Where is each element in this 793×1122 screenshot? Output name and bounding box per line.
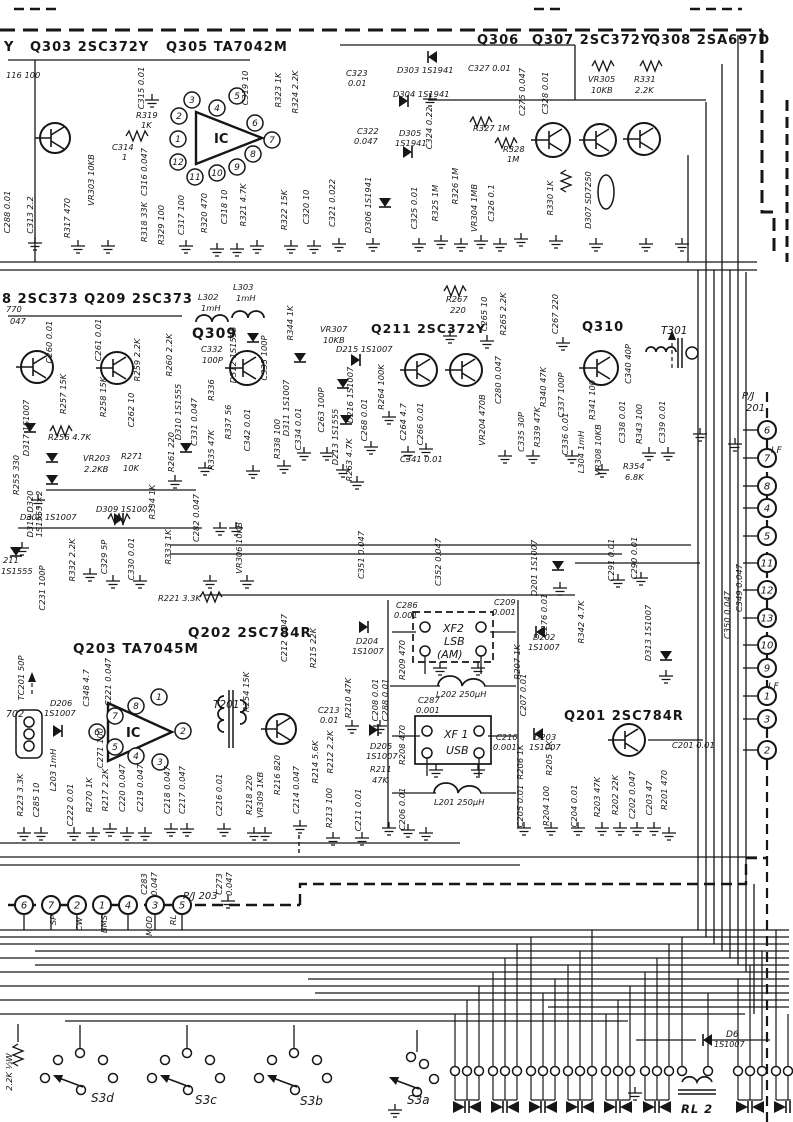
component-label: D310 1S1555 — [173, 384, 183, 441]
component-label: 0.001 — [394, 610, 418, 620]
ground-symbol — [364, 441, 378, 454]
component-label: 0.047 — [149, 871, 159, 895]
pj201-pin-number: 2 — [764, 746, 770, 757]
section-title: Q303 2SC372Y — [30, 40, 149, 55]
component-label: R344 1K — [285, 305, 295, 341]
section-title: P/J 203 — [183, 891, 218, 902]
filter-pin-xf2 — [420, 622, 430, 632]
component-label: R327 1M — [473, 123, 510, 133]
component-label: C334 0.01 — [293, 408, 303, 451]
component-label: C316 0.047 — [139, 147, 149, 196]
component-label: CW — [74, 916, 84, 931]
component-label: C211 0.01 — [353, 789, 363, 832]
ic-q305-pin-number: 9 — [234, 163, 240, 173]
component-label: R326 1M — [450, 168, 460, 205]
lamp-d307 — [598, 175, 614, 209]
ground-symbol — [345, 720, 359, 733]
steering-diode — [774, 1101, 786, 1113]
terminal-circle — [463, 1067, 472, 1076]
component-label: R264 100K — [376, 364, 386, 410]
pj201-pin-number: 4 — [764, 504, 770, 515]
ic-q305-pin-number: 4 — [214, 104, 220, 114]
component-label: D305 — [399, 128, 421, 138]
pj203-pin-number: 1 — [99, 901, 105, 912]
ground-symbol — [210, 243, 224, 256]
component-label: VR307 — [320, 324, 348, 334]
transistor-leads-q303 — [35, 127, 64, 149]
ic-q305-pin-number: 2 — [176, 112, 182, 122]
component-label: R223 3.3K — [15, 773, 25, 816]
component-label: D216 1S1007 — [345, 366, 355, 423]
component-label: VR308 10KB — [593, 424, 603, 476]
ground-symbol — [168, 475, 182, 488]
component-label: R333 1K — [163, 529, 173, 565]
ic-q305-pin-number: 8 — [250, 150, 256, 160]
component-label: C207 0.01 — [518, 674, 528, 717]
component-label: C221 0.047 — [103, 657, 113, 706]
ground-symbol — [480, 335, 494, 348]
terminal-circle — [451, 1067, 460, 1076]
diode-symbol — [552, 561, 564, 570]
component-label: D309 1S1007 — [96, 504, 153, 514]
component-label: C348 4.7 — [81, 669, 91, 707]
component-label: R340 47K — [538, 366, 548, 407]
component-label: 211 — [3, 555, 19, 565]
component-label: C349 0.047 — [734, 563, 744, 612]
ground-symbol — [213, 522, 227, 535]
component-label: R259 2.2K — [132, 338, 142, 381]
ic-q203-pin-number: 2 — [180, 727, 186, 737]
ground-symbol — [164, 823, 178, 836]
steering-diode — [507, 1101, 519, 1113]
ground-symbol — [675, 238, 689, 251]
component-label: C260 0.01 — [44, 321, 54, 364]
component-label: R218 220 — [244, 775, 254, 815]
component-label: C351 0.047 — [356, 530, 366, 579]
component-label: D307 SD7250 — [583, 171, 593, 229]
terminal-circle — [602, 1067, 611, 1076]
component-label: R343 100 — [634, 404, 644, 444]
component-label: VR306 10KB — [234, 522, 244, 574]
ground-symbol — [474, 235, 488, 248]
component-label: R221 3.3K — [158, 593, 201, 603]
component-label: C321 0.022 — [327, 179, 337, 227]
pj201-pin-number: 1 — [764, 692, 770, 703]
switch-wiper-s3c — [166, 1078, 190, 1087]
steering-diode — [453, 1101, 465, 1113]
ground-symbol — [145, 94, 159, 107]
section-title: Q310 — [582, 320, 624, 335]
component-label: 0.001 — [493, 742, 517, 752]
pj201-pin-number: 6 — [764, 426, 770, 437]
coil-l202 — [438, 676, 485, 686]
ic-q203-label: IC — [126, 726, 140, 741]
component-label: D313 1S1007 — [643, 604, 653, 661]
section-title: Q309 — [192, 326, 237, 342]
pj201-pin-number: 9 — [764, 664, 770, 675]
component-label: R332 2.2K — [67, 538, 77, 581]
component-label: C218 0.047 — [162, 765, 172, 814]
diode-symbol — [46, 453, 58, 462]
component-label: C318 10 — [219, 190, 229, 225]
component-label: C202 0.047 — [627, 770, 637, 819]
component-label: C217 0.047 — [177, 765, 187, 814]
terminal-circle — [539, 1067, 548, 1076]
component-label: C342 0.01 — [242, 409, 252, 452]
component-label: 0.001 — [416, 705, 440, 715]
switch-contact-s3a — [430, 1075, 439, 1084]
section-title: S3b — [300, 1094, 323, 1108]
transistor-leads-q211a — [400, 359, 430, 381]
component-label: R317 470 — [62, 198, 72, 238]
component-label: R267 — [446, 294, 468, 304]
component-label: C204 0.01 — [569, 785, 579, 828]
pj201-pin-number: 7 — [764, 454, 771, 465]
component-label: 100P — [202, 355, 223, 365]
switch-contact-s3d — [54, 1056, 63, 1065]
pj203-pin-number: 6 — [21, 901, 27, 912]
steering-diode — [545, 1101, 557, 1113]
ground-symbol — [639, 238, 653, 251]
diode-symbol — [53, 725, 62, 737]
filter-pin-xf2 — [476, 622, 486, 632]
ic-q203-pin-number: 1 — [156, 693, 162, 703]
diode-symbol — [46, 475, 58, 484]
component-label: R334 1K — [147, 484, 157, 520]
component-label: 116 100 — [6, 70, 40, 80]
ground-symbol — [240, 575, 254, 588]
component-label: SP — [48, 915, 58, 925]
transistor-leads-q308 — [623, 128, 653, 150]
switch-contact-s3c — [183, 1049, 192, 1058]
component-label: C263 100P — [316, 387, 326, 432]
terminal-circle — [475, 1067, 484, 1076]
component-label: C337 100P — [556, 372, 566, 417]
steering-diode — [604, 1101, 616, 1113]
component-label: 1mH — [201, 303, 221, 313]
transistor-leads-q310 — [579, 357, 610, 379]
filter-pin-xf2 — [476, 646, 486, 656]
filter-pin-xf1 — [474, 726, 484, 736]
coil-turn — [686, 347, 698, 359]
ic-q305-pin-number: 10 — [211, 169, 223, 179]
ground-symbol — [388, 1104, 402, 1117]
component-label: 2.2K ½W — [4, 1052, 14, 1090]
component-label: D203 — [534, 732, 556, 742]
terminal-circle — [501, 1067, 510, 1076]
component-label: R209 470 — [397, 640, 407, 680]
component-label: C329 5P — [99, 540, 109, 575]
component-label: 1mH — [236, 293, 256, 303]
component-label: R330 1K — [545, 180, 555, 216]
component-label: R342 4.7K — [576, 600, 586, 643]
filter-pin-xf1 — [474, 748, 484, 758]
ground-symbol — [106, 575, 120, 588]
component-label: C327 0.01 — [468, 63, 511, 73]
component-label: C325 0.01 — [409, 187, 419, 230]
component-label: R318 33K — [139, 201, 149, 242]
terminal-circle — [564, 1067, 573, 1076]
ic-q305-pin-number: 12 — [172, 158, 184, 168]
component-label: D205 — [370, 741, 392, 751]
component-label: C323 — [346, 68, 368, 78]
ground-symbol — [203, 575, 217, 588]
terminal-circle — [665, 1067, 674, 1076]
ground-symbol — [433, 662, 447, 675]
ground-symbol — [307, 240, 321, 253]
ground-symbol — [250, 240, 264, 253]
component-label: 1S1007 — [528, 642, 560, 652]
component-label: C286 — [396, 600, 418, 610]
switch-wiper-arrow-s3b — [267, 1075, 277, 1083]
component-label: 10KB — [591, 85, 613, 95]
coil-rl2 — [682, 1077, 712, 1082]
component-label: C291 0.01 — [606, 539, 616, 582]
diode-symbol — [351, 354, 360, 366]
transistor-leads-q306 — [531, 129, 562, 151]
switch-wiper-s3b — [273, 1078, 297, 1087]
pj201-pin-number: 3 — [764, 715, 770, 726]
terminal-circle — [614, 1067, 623, 1076]
switch-contact-s3c — [216, 1074, 225, 1083]
ground-symbol — [34, 827, 48, 840]
component-label: C216 0.01 — [214, 774, 224, 817]
component-label: D204 — [356, 636, 378, 646]
filter-pin-xf2 — [420, 646, 430, 656]
component-label: R208 470 — [397, 725, 407, 765]
component-label: C271 100 — [95, 728, 105, 768]
coil-turn — [24, 729, 34, 739]
switch-contact-s3c — [206, 1056, 215, 1065]
switch-contact-s3d — [41, 1074, 50, 1083]
component-label: L201 250µH — [434, 797, 485, 807]
component-label: VR203 — [83, 453, 110, 463]
switch-contact-s3c — [161, 1056, 170, 1065]
ground-symbol — [589, 238, 603, 251]
section-title: 201 — [746, 403, 765, 414]
component-label: C338 0.01 — [617, 401, 627, 444]
dashed-border-line — [762, 30, 774, 258]
component-label: D303 1S1941 — [397, 65, 454, 75]
ic-q305-pin-number: 7 — [269, 136, 275, 146]
component-label: C314 — [112, 142, 134, 152]
ground-symbol — [471, 764, 485, 777]
component-label: R265 2.2K — [498, 292, 508, 335]
schematic-canvas: IC321121145678910IC781654326784511121310… — [0, 0, 793, 1122]
switch-wiper-arrow-s3a — [389, 1077, 399, 1085]
switch-contact-s3b — [268, 1056, 277, 1065]
component-label: R337 56 — [223, 405, 233, 440]
component-label: R321 4.7K — [238, 183, 248, 226]
resistor-zigzag — [200, 592, 222, 602]
section-title: 1S1007 — [714, 1040, 745, 1049]
ground-symbol — [71, 240, 85, 253]
switch-contact-s3b — [255, 1074, 264, 1083]
component-label: R201 470 — [659, 770, 669, 810]
terminal-circle — [653, 1067, 662, 1076]
ground-symbol — [284, 240, 298, 253]
terminal-circle — [588, 1067, 597, 1076]
component-label: 10K — [123, 463, 140, 473]
resistor-zigzag — [640, 61, 662, 71]
component-label: VR309 1KB — [255, 772, 265, 819]
component-label: C262 10 — [126, 393, 136, 428]
ground-symbol — [83, 568, 97, 581]
component-label: 0.001 — [492, 607, 516, 617]
section-title: Q203 TA7045M — [73, 641, 199, 657]
ground-symbol — [138, 827, 152, 840]
component-label: D206 — [50, 698, 72, 708]
ground-symbol — [120, 827, 134, 840]
component-label: D308 1S1007 — [20, 512, 77, 522]
component-label: C209 — [494, 597, 516, 607]
coil-l201 — [434, 783, 481, 793]
steering-diode — [529, 1101, 541, 1113]
section-title: T301 — [661, 325, 687, 337]
component-label: R341 100 — [587, 380, 597, 420]
diode-symbol — [359, 621, 368, 633]
component-label: 1S1007 — [44, 708, 76, 718]
ground-symbol — [382, 411, 396, 424]
diode-symbol — [294, 353, 306, 362]
section-title: 702 — [6, 709, 24, 720]
component-label: R254 15K — [241, 671, 251, 712]
component-label: VR204 470B — [477, 394, 487, 446]
component-label: D311 1S1007 — [281, 379, 291, 436]
component-label: 1K — [141, 120, 152, 130]
pj201-pin-number: 11 — [761, 559, 774, 570]
component-label: C220 0.047 — [117, 763, 127, 812]
component-label: MOD — [144, 916, 154, 936]
ground-symbol — [454, 238, 468, 251]
component-label: C288 0.01 — [2, 191, 12, 234]
section-title: Q308 2SA697D — [649, 33, 770, 48]
component-label: C287 — [418, 695, 440, 705]
component-label: C340 40P — [623, 344, 633, 384]
component-label: C332 — [201, 344, 223, 354]
steering-diode — [620, 1101, 632, 1113]
component-label: D317 1S1007 — [21, 399, 31, 456]
steering-diode — [582, 1101, 594, 1113]
component-label: C208 0.01 — [370, 679, 380, 722]
component-label: C264 4.7 — [398, 403, 408, 441]
component-label: R217 2.2K — [100, 768, 110, 811]
component-label: R336 — [206, 379, 216, 401]
component-label: C206 0.01 — [397, 788, 407, 831]
component-label: 47K — [372, 775, 389, 785]
component-label: C266 0.01 — [415, 403, 425, 446]
component-label: R202 22K — [610, 774, 620, 815]
component-label: L302 — [198, 292, 218, 302]
filter-label-xf2: (AM) — [437, 648, 463, 661]
pj201-pin-number: 10 — [761, 641, 774, 652]
ground-symbol — [661, 447, 675, 460]
transistor-leads-q208 — [16, 356, 46, 378]
component-label: C339 0.01 — [657, 401, 667, 444]
component-label: R323 1K — [273, 72, 283, 108]
component-label: R212 2.2K — [325, 730, 335, 773]
component-label: R206 1K — [515, 744, 525, 780]
component-label: D304 1S1941 — [393, 89, 450, 99]
section-title: RL 2 — [681, 1102, 713, 1116]
ground-symbol — [693, 428, 707, 441]
terminal-circle — [489, 1067, 498, 1076]
switch-wiper-arrow-s3c — [160, 1075, 170, 1083]
component-label: C282 0.047 — [191, 493, 201, 542]
component-label: C319 10 — [240, 71, 250, 106]
section-title: Q202 2SC784R — [188, 625, 312, 641]
component-label: R354 — [623, 461, 645, 471]
switch-contact-s3b — [313, 1056, 322, 1065]
ground-symbol — [101, 240, 115, 253]
ground-symbol — [429, 764, 443, 777]
component-label: C275 0.047 — [517, 67, 527, 116]
steering-diode — [752, 1101, 764, 1113]
component-label: 047 — [10, 316, 27, 326]
ground-symbol — [332, 238, 346, 251]
section-title: T201 — [213, 699, 239, 711]
ground-symbol — [258, 827, 272, 840]
component-label: R271 — [121, 451, 143, 461]
section-title: P/J — [742, 391, 754, 402]
component-label: 220 — [450, 305, 466, 315]
transistor-leads-q201 — [608, 729, 638, 751]
component-label: C336 0.01 — [560, 413, 570, 456]
component-label: R210 47K — [343, 677, 353, 718]
pj201-pin-number: 8 — [764, 482, 770, 493]
filter-label-xf1: XF 1 — [443, 728, 468, 741]
switch-contact-s3d — [99, 1056, 108, 1065]
component-label: C333 100P — [259, 335, 269, 380]
section-title: Q305 TA7042M — [166, 40, 288, 55]
component-label: C285 10 — [31, 783, 41, 818]
ic-q203-pin-number: 8 — [133, 702, 139, 712]
pj203-pin-number: 2 — [74, 901, 80, 912]
component-label: R211 — [370, 764, 392, 774]
component-label: R270 1K — [84, 777, 94, 813]
component-label: R256 4.7K — [48, 432, 91, 442]
switch-contact-s3b — [290, 1049, 299, 1058]
coil-turn — [24, 741, 34, 751]
ic-q203-pin-number: 5 — [112, 743, 118, 753]
terminal-circle — [734, 1067, 743, 1076]
component-label: VR303 10KB — [86, 154, 96, 206]
component-label: D201 1S1007 — [529, 539, 539, 596]
component-label: C201 0.01 — [672, 740, 715, 750]
section-title: Y — [3, 40, 14, 55]
component-label: C350 0.047 — [722, 590, 732, 639]
component-label: C313 2.2 — [25, 196, 35, 233]
diode-symbol — [428, 51, 437, 63]
section-title: Q307 2SC372Y — [532, 33, 651, 48]
component-label: VR304 1MB — [469, 184, 479, 232]
ic-q305-pin-number: 3 — [189, 96, 195, 106]
ic-q305-pin-number: 6 — [252, 119, 258, 129]
diode-symbol — [379, 198, 391, 207]
switch-contact-s3a — [420, 1060, 429, 1069]
ground-symbol — [179, 240, 193, 253]
component-label: BMS — [99, 915, 109, 933]
component-label: C315 0.01 — [136, 67, 146, 110]
resistor-zigzag — [126, 131, 148, 141]
component-label: 1S1555 — [1, 566, 33, 576]
transistor-leads-q202 — [261, 718, 290, 740]
terminal-circle — [551, 1067, 560, 1076]
ground-symbol — [217, 823, 231, 836]
component-label: RL — [168, 914, 178, 925]
component-label: R205 1K — [544, 740, 554, 776]
resistor-zigzag — [13, 1044, 23, 1066]
